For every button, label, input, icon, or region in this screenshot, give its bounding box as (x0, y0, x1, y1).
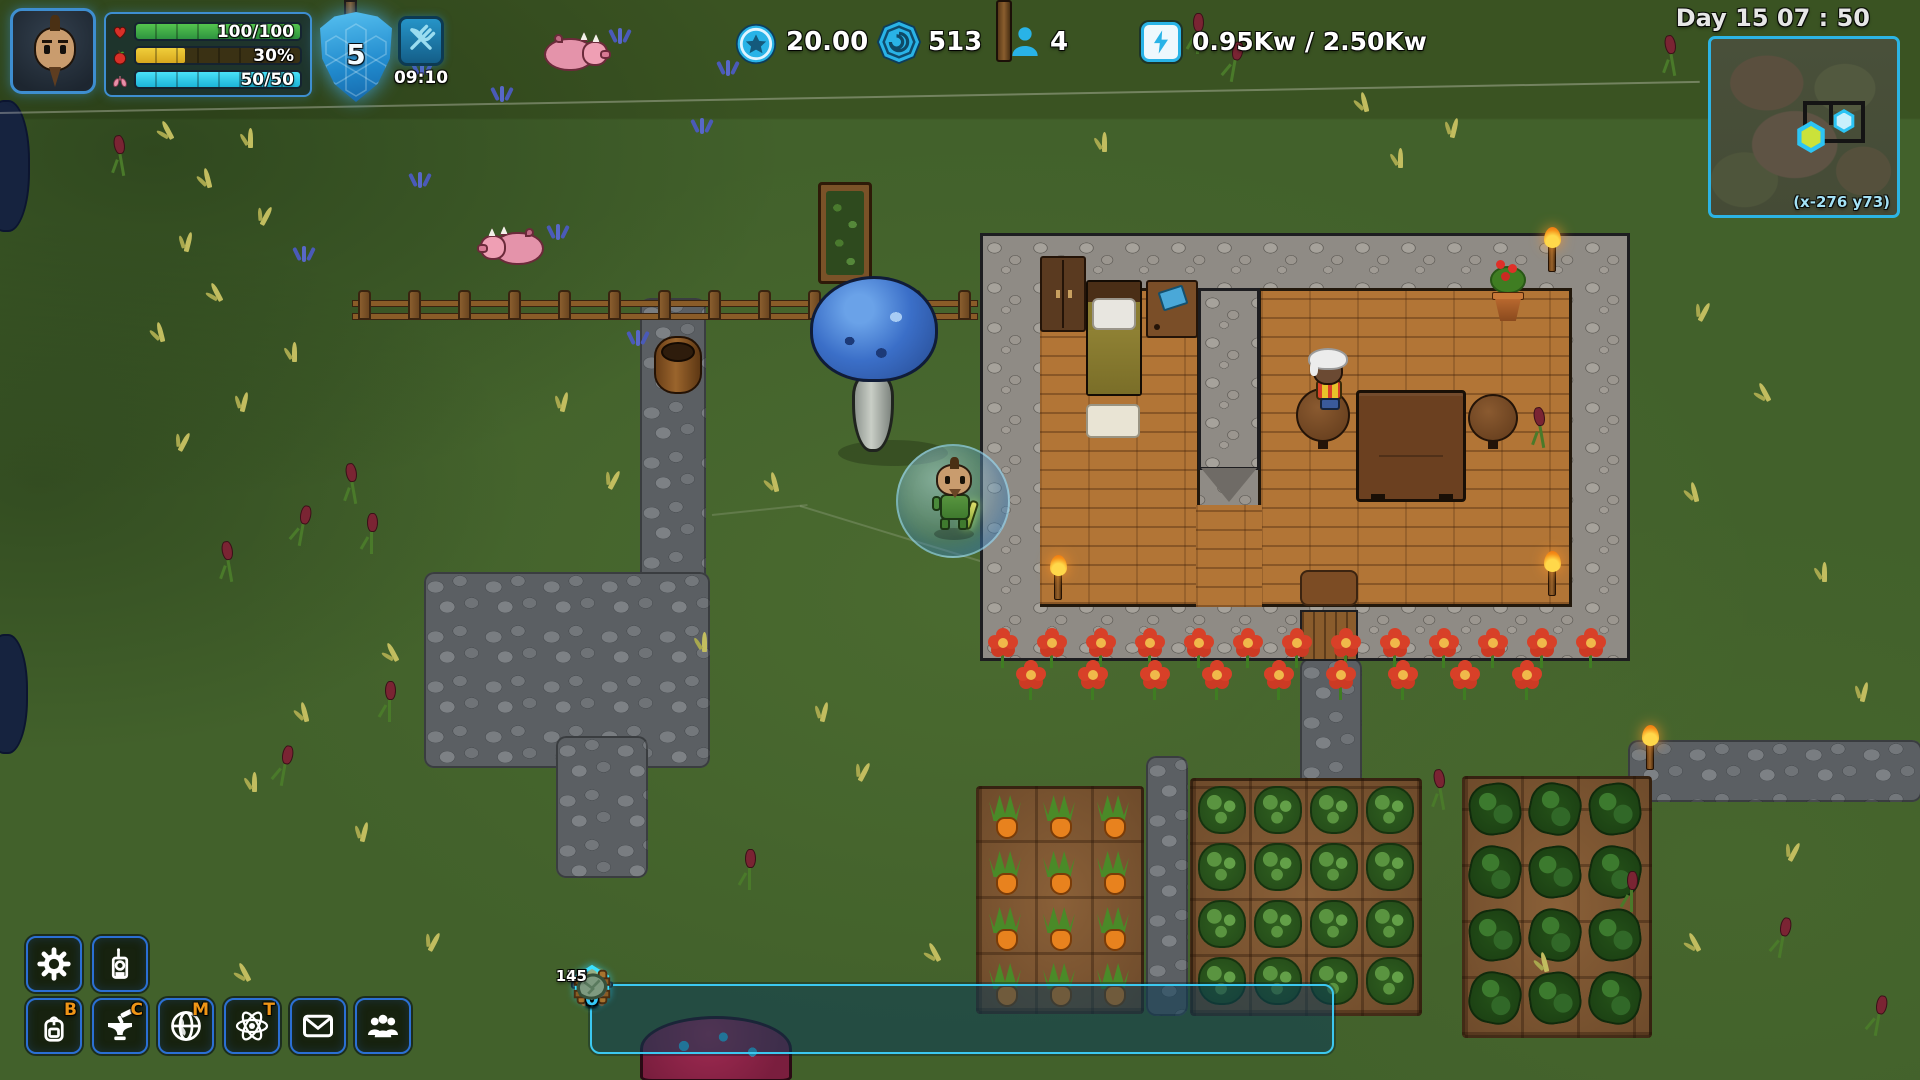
grass-sprout (210, 282, 224, 302)
grass-sprout (300, 702, 310, 723)
nightstand-knob (1154, 324, 1160, 330)
pig[interactable] (482, 222, 548, 272)
blue-mushroom-cap[interactable] (810, 276, 938, 382)
table-foot (1371, 494, 1385, 502)
cabbage-crop[interactable] (1198, 843, 1246, 891)
grass-sprout (1860, 682, 1870, 703)
carrot-crop[interactable] (1095, 907, 1131, 953)
player-avatar[interactable] (10, 8, 96, 94)
star-coin-icon (735, 23, 777, 65)
power-meter (1141, 22, 1181, 62)
red-flower (1514, 666, 1540, 702)
grass-sprout (1758, 382, 1772, 402)
lungs-icon (111, 73, 129, 91)
radio-button[interactable] (92, 936, 148, 992)
avatar-brow (42, 40, 52, 43)
status-panel: 100/100 30% 50/50 (104, 12, 312, 97)
flower-pot[interactable] (1484, 258, 1532, 324)
red-flower (1333, 634, 1359, 670)
heart-icon (111, 23, 129, 41)
shield-hex-icon: 5 (320, 12, 392, 102)
barrel-opening (661, 342, 695, 362)
red-flower (1480, 634, 1506, 670)
bed-pillow (1092, 298, 1136, 330)
grass-sprout (1450, 118, 1460, 139)
water-edge (0, 100, 30, 232)
blue-flower (418, 172, 422, 188)
grass-sprout (238, 962, 252, 982)
grass-sprout (161, 120, 175, 140)
nightstand[interactable] (1146, 280, 1198, 338)
herb-crop[interactable] (1524, 778, 1586, 840)
avatar-eye (60, 45, 66, 54)
avatar-beard (49, 67, 61, 87)
carrot-crop[interactable] (1041, 907, 1077, 953)
fence-post (408, 290, 421, 320)
mail-button[interactable] (290, 998, 346, 1054)
grass-sprout (156, 322, 166, 343)
red-flower (1390, 666, 1416, 702)
grass-sprout (184, 232, 194, 253)
blue-flower (700, 118, 704, 134)
red-flower (1018, 666, 1044, 702)
red-flower (1452, 666, 1478, 702)
red-flower (1142, 666, 1168, 702)
interior-divider-wall (1198, 288, 1260, 470)
health-bar: 100/100 (134, 22, 302, 41)
grass-sprout (1698, 302, 1712, 322)
fence-post (508, 290, 521, 320)
map-hotkey: M (192, 1000, 209, 1020)
pot-blooms (1496, 260, 1505, 269)
cattail-plant (1874, 1010, 1881, 1036)
crafting-button[interactable]: C (92, 998, 148, 1054)
interior-doorway-floor (1196, 505, 1262, 607)
grass-sprout (240, 392, 250, 413)
grass-sprout (260, 206, 274, 226)
lightning-icon (1147, 28, 1175, 56)
pot-rim (1492, 292, 1524, 300)
grass-sprout (820, 702, 830, 723)
avatar-face (34, 27, 76, 71)
fence-post (558, 290, 571, 320)
herb-crop[interactable] (1524, 904, 1586, 966)
tech-hotkey: T (263, 1000, 275, 1020)
cabbage-crop[interactable] (1198, 900, 1246, 948)
blue-flower (726, 60, 730, 76)
fence-post (958, 290, 971, 320)
red-flower (1529, 634, 1555, 670)
red-flower (1088, 634, 1114, 670)
herb-crop[interactable] (1466, 906, 1525, 965)
slot-count: 45 (566, 967, 587, 985)
cattail-plant (350, 478, 357, 504)
avatar-mohawk (50, 15, 60, 31)
torch[interactable] (1548, 244, 1556, 272)
herb-crop[interactable] (1586, 780, 1645, 839)
blue-flower (636, 330, 640, 346)
grass-sprout (248, 128, 253, 148)
chair-leg (1318, 440, 1328, 449)
cabbage-crop[interactable] (1310, 786, 1358, 834)
cabbage-crop[interactable] (1198, 786, 1246, 834)
hunger-value: 30% (253, 46, 294, 65)
fork-knife-icon (404, 22, 438, 56)
cattail-plant (280, 760, 287, 786)
cattail-plant (118, 150, 125, 176)
cattail-plant (1778, 932, 1785, 958)
red-flower (1382, 634, 1408, 670)
cattail-plant (1669, 50, 1676, 76)
farm-plot-cabbage[interactable] (1190, 778, 1422, 1016)
pig[interactable] (540, 28, 606, 78)
grass-sprout (360, 822, 370, 843)
fence-post (358, 290, 371, 320)
map-button[interactable]: M (158, 998, 214, 1054)
cabbage-crop[interactable] (1366, 957, 1414, 1005)
wall-planter[interactable] (818, 182, 872, 284)
grass-sprout (1690, 482, 1700, 503)
red-flower (1328, 666, 1354, 702)
gear-icon (36, 946, 72, 982)
red-flower (1080, 666, 1106, 702)
avatar-eye (44, 45, 50, 54)
barrel[interactable] (654, 336, 702, 394)
carrot-crop[interactable] (1041, 795, 1077, 841)
red-flower (1204, 666, 1230, 702)
stool-leg (1488, 440, 1498, 449)
crafting-hotkey: C (131, 1000, 143, 1020)
cabbage-crop[interactable] (1254, 786, 1302, 834)
tech-button[interactable]: T (224, 998, 280, 1054)
grass-sprout (560, 392, 570, 413)
oxygen-bar: 50/50 (134, 70, 302, 89)
grass-sprout (386, 642, 400, 662)
cattail-plant (298, 520, 305, 546)
cattail-plant (1438, 784, 1445, 810)
torch[interactable] (1054, 572, 1062, 600)
door-mat (1300, 570, 1358, 606)
inventory-button[interactable]: B (26, 998, 82, 1054)
red-flower (1039, 634, 1065, 670)
fence-post (758, 290, 771, 320)
cattail-plant (388, 696, 391, 722)
cattail-plant (370, 528, 373, 554)
grass-sprout (1822, 562, 1827, 582)
cabbage-crop[interactable] (1310, 900, 1358, 948)
health-value: 100/100 (217, 22, 294, 41)
herb-crop[interactable] (1586, 906, 1645, 965)
grass-sprout (203, 168, 213, 189)
fence-post (658, 290, 671, 320)
carrot-crop[interactable] (987, 851, 1023, 897)
red-flower (990, 634, 1016, 670)
fence-post (608, 290, 621, 320)
cattail-plant (748, 864, 751, 890)
settler-character[interactable] (1300, 350, 1360, 420)
minimap-house-divider (1829, 105, 1833, 125)
grass-sprout (1688, 932, 1702, 952)
minimap[interactable]: (x-276 y73) (1708, 36, 1900, 218)
people-icon (365, 1008, 401, 1044)
grass-sprout (858, 762, 872, 782)
pot-leaves (1490, 266, 1526, 294)
table[interactable] (1356, 390, 1466, 502)
shield-buff-value: 5 (320, 38, 392, 71)
shield-buff[interactable]: 5 (320, 12, 392, 102)
farm-plot-herbs[interactable] (1462, 776, 1652, 1038)
power-value: 0.95Kw / 2.50Kw (1192, 27, 1427, 56)
coins-value: 20.00 (786, 27, 868, 57)
cattail-plant (1230, 56, 1237, 82)
cabbage-crop[interactable] (1254, 843, 1302, 891)
settlers-value: 4 (1050, 27, 1068, 57)
grass-sprout (428, 932, 442, 952)
torch[interactable] (1646, 742, 1654, 770)
carrot-crop[interactable] (987, 907, 1023, 953)
pot-body (1494, 299, 1522, 321)
grass-sprout (770, 472, 780, 493)
red-flower (1235, 634, 1261, 670)
day-clock: Day 15 07 : 50 (1676, 4, 1870, 32)
apple-icon (111, 48, 129, 66)
cattail-plant (1630, 886, 1633, 912)
white-rug (1086, 404, 1140, 438)
bed-blanket (1088, 330, 1140, 394)
farm-plot-carrots[interactable] (976, 786, 1144, 1014)
table-foot (1439, 494, 1453, 502)
fence-post (458, 290, 471, 320)
cabbage-crop[interactable] (1254, 900, 1302, 948)
grass-sprout (292, 342, 297, 362)
grass-sprout (1788, 842, 1802, 862)
carrot-crop[interactable] (1041, 851, 1077, 897)
inventory-hotkey: B (64, 1000, 77, 1020)
minimap-coordinates: (x-276 y73) (1793, 193, 1890, 211)
fence-post (708, 290, 721, 320)
cabbage-crop[interactable] (1310, 843, 1358, 891)
carrot-crop[interactable] (1095, 851, 1131, 897)
grass-sprout (1398, 148, 1403, 168)
stone-path (1146, 756, 1188, 1016)
carrot-crop[interactable] (987, 795, 1023, 841)
red-flower (1266, 666, 1292, 702)
hex-gem-icon (876, 19, 922, 65)
cattail-plant (226, 556, 233, 582)
grass-sprout (1102, 132, 1107, 152)
torch[interactable] (1548, 568, 1556, 596)
hunger-bar: 30% (134, 46, 302, 65)
settlers-button[interactable] (355, 998, 411, 1054)
game-viewport: 100/100 30% 50/50 (0, 0, 1920, 1080)
herb-crop[interactable] (1584, 841, 1646, 903)
fishing-line (712, 504, 808, 516)
radio-icon (102, 946, 138, 982)
wardrobe-door-seam (1062, 260, 1064, 328)
person-icon (1006, 22, 1044, 60)
red-flower (1186, 634, 1212, 670)
planter-foliage (826, 191, 864, 275)
grass-sprout (252, 772, 257, 792)
blue-flower (500, 86, 504, 102)
bed[interactable] (1086, 280, 1142, 396)
herb-crop[interactable] (1526, 969, 1585, 1028)
cabbage-crop[interactable] (1366, 786, 1414, 834)
herb-crop[interactable] (1584, 967, 1646, 1029)
avatar-brow (58, 40, 68, 43)
red-flower (1137, 634, 1163, 670)
food-buff-timer: 09:10 (386, 68, 456, 88)
gems-value: 513 (928, 27, 982, 57)
hotbar: 1 2 3 4 5 6 2 7 (590, 984, 1334, 1054)
grass-sprout (928, 942, 942, 962)
cabbage-crop[interactable] (1366, 900, 1414, 948)
settings-button[interactable] (26, 936, 82, 992)
water-edge (0, 634, 28, 754)
stool[interactable] (1468, 394, 1518, 442)
red-flower (1284, 634, 1310, 670)
wardrobe-handle (1068, 290, 1072, 298)
grass-sprout (608, 470, 622, 490)
red-flower (1578, 634, 1604, 670)
herb-crop[interactable] (1464, 967, 1526, 1029)
wardrobe[interactable] (1040, 256, 1086, 332)
blue-flower (618, 28, 622, 44)
herb-crop[interactable] (1464, 841, 1526, 903)
blue-flower (302, 246, 306, 262)
herb-crop[interactable] (1526, 843, 1585, 902)
oxygen-value: 50/50 (240, 70, 294, 89)
food-buff[interactable] (398, 16, 444, 66)
grass-sprout (702, 632, 707, 652)
wardrobe-handle (1056, 290, 1060, 298)
envelope-icon (300, 1008, 336, 1044)
player-character[interactable] (922, 462, 986, 542)
table-scratch (1379, 455, 1443, 457)
herb-crop[interactable] (1466, 780, 1525, 839)
grass-sprout (1360, 92, 1370, 113)
grass-sprout (178, 432, 192, 452)
cabbage-crop[interactable] (1366, 843, 1414, 891)
carrot-crop[interactable] (1095, 795, 1131, 841)
stone-path (1628, 740, 1920, 802)
stone-path (556, 736, 648, 878)
blue-flower (556, 224, 560, 240)
blue-book (1158, 284, 1189, 311)
red-flower (1431, 634, 1457, 670)
